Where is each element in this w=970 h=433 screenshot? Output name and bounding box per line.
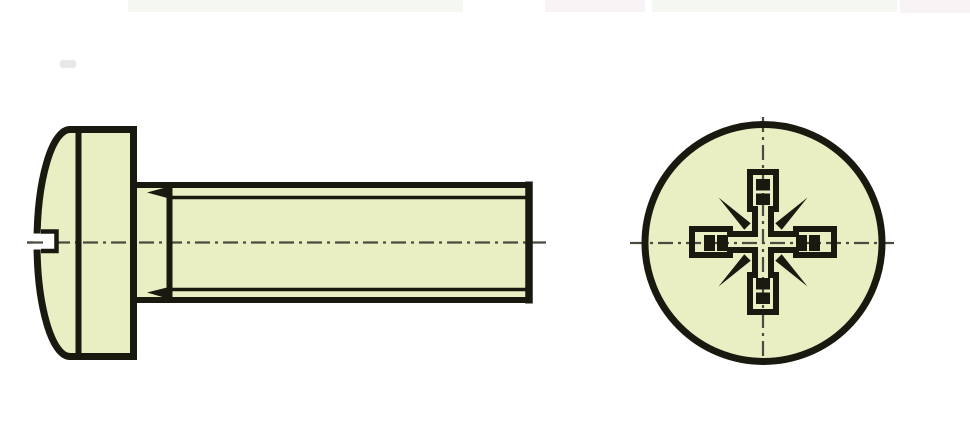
wing-mark bbox=[756, 179, 770, 191]
scan-smudge bbox=[60, 60, 76, 68]
wing-mark bbox=[717, 235, 728, 251]
scan-smudge bbox=[900, 0, 970, 13]
wing-mark bbox=[756, 293, 770, 305]
scan-smudge bbox=[652, 0, 897, 12]
drawing-canvas bbox=[0, 0, 970, 433]
end-view bbox=[630, 117, 894, 369]
technical-drawing bbox=[0, 0, 970, 433]
wing-mark bbox=[756, 194, 770, 206]
wing-mark bbox=[756, 278, 770, 290]
scan-artifacts bbox=[60, 0, 970, 68]
scan-smudge bbox=[545, 0, 645, 12]
wing-mark bbox=[796, 235, 807, 251]
wing-mark bbox=[704, 235, 715, 251]
side-view bbox=[27, 127, 546, 359]
scan-smudge bbox=[128, 0, 463, 12]
wing-mark bbox=[809, 235, 820, 251]
